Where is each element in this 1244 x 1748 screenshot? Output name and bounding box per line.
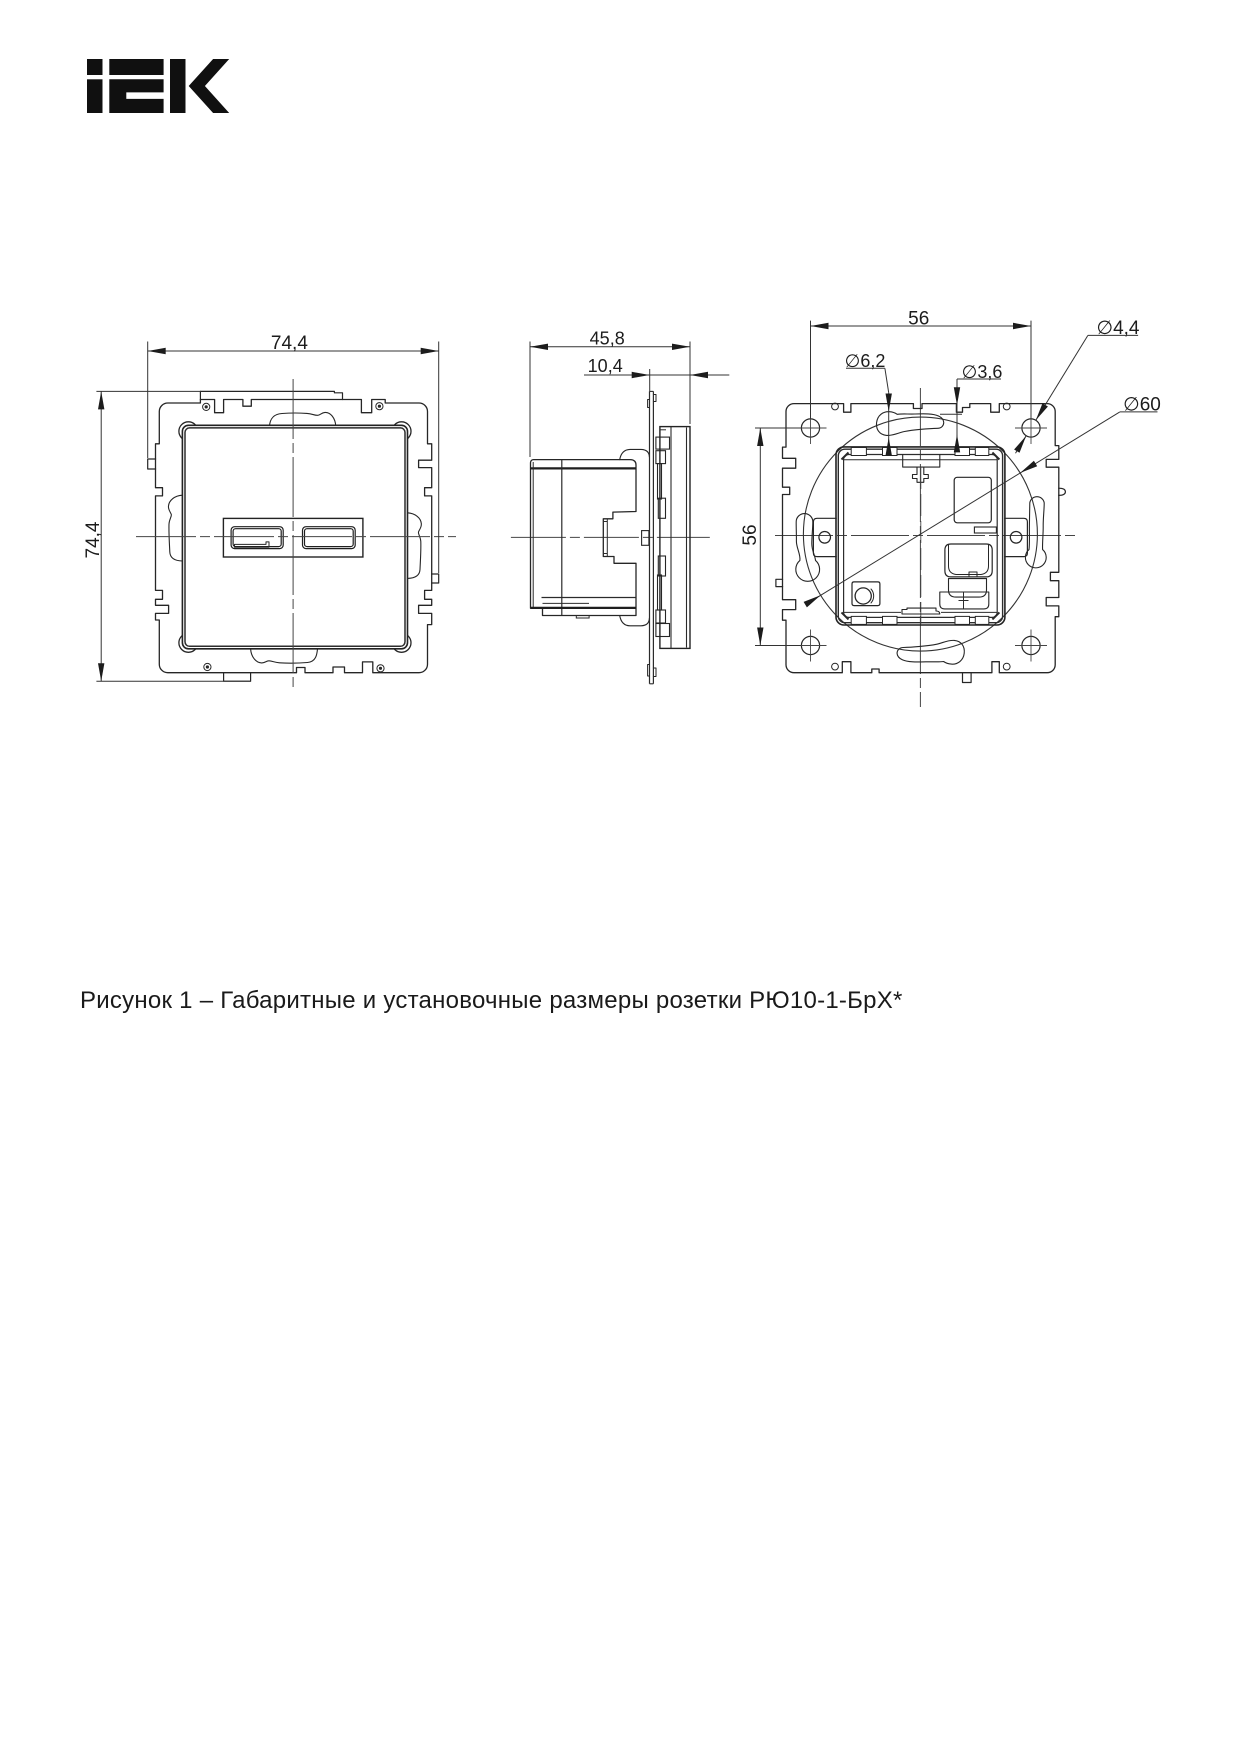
svg-text:Рисунок 1 – Габаритные и устан: Рисунок 1 – Габаритные и установочные ра… <box>80 987 903 1014</box>
svg-text:74,4: 74,4 <box>83 521 104 558</box>
svg-text:45,8: 45,8 <box>590 328 625 348</box>
svg-text:74,4: 74,4 <box>271 333 308 354</box>
svg-text:10,4: 10,4 <box>588 356 623 376</box>
svg-text:56: 56 <box>740 524 761 545</box>
svg-text:56: 56 <box>908 308 929 329</box>
